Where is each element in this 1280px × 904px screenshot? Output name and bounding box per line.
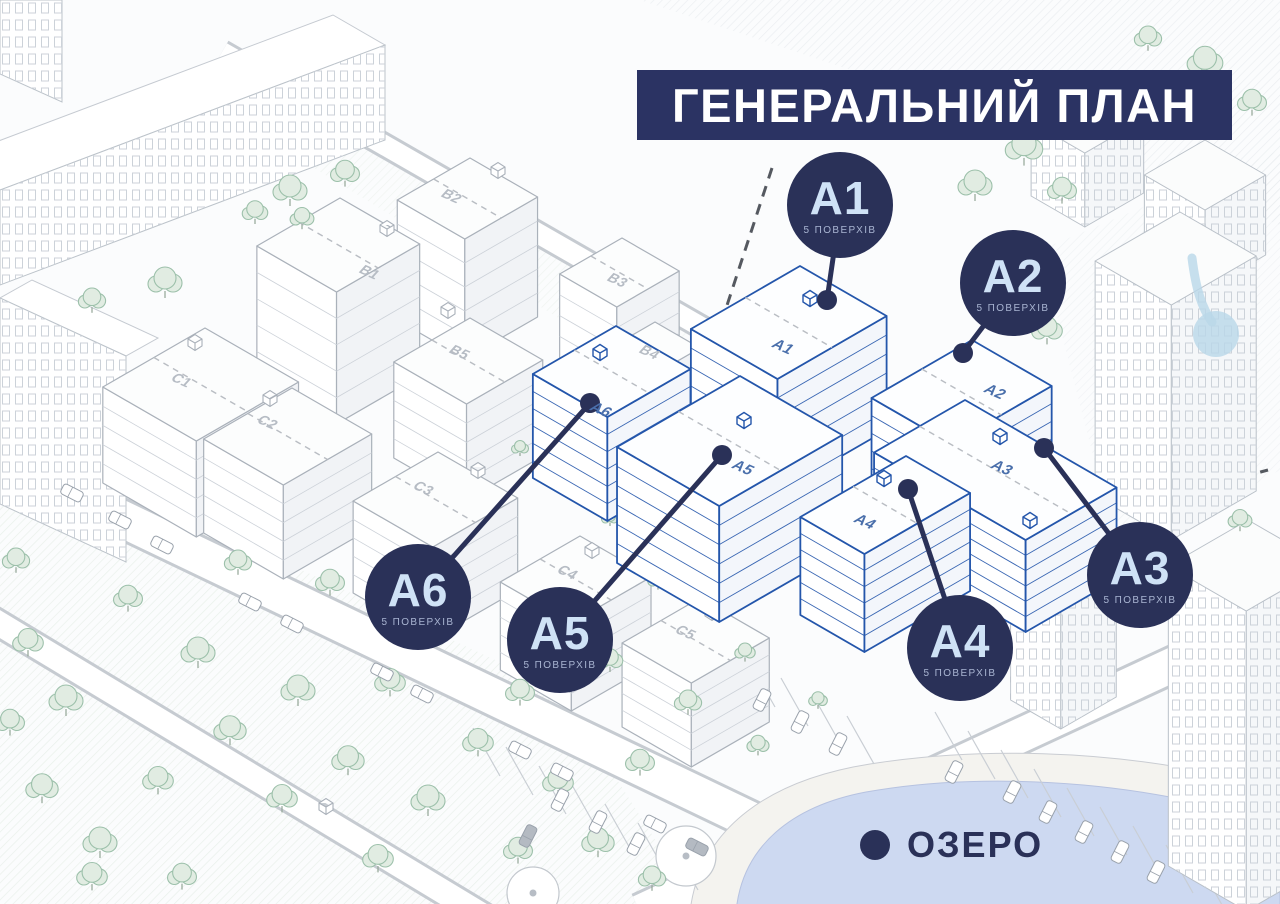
badge-a2-floors: 5 ПОВЕРХІВ <box>977 303 1050 314</box>
badge-a6-floors: 5 ПОВЕРХІВ <box>382 617 455 628</box>
building-badge-a5[interactable]: A5 5 ПОВЕРХІВ <box>507 587 613 693</box>
masterplan-poster: ГЕНЕРАЛЬНИЙ ПЛАН A1 5 ПОВЕРХІВ A2 5 ПОВЕ… <box>0 0 1280 904</box>
badge-a1-floors: 5 ПОВЕРХІВ <box>804 225 877 236</box>
badge-a5-floors: 5 ПОВЕРХІВ <box>524 660 597 671</box>
badge-a3-floors: 5 ПОВЕРХІВ <box>1104 595 1177 606</box>
page-title: ГЕНЕРАЛЬНИЙ ПЛАН <box>637 70 1232 140</box>
badge-a3-label: A3 <box>1110 545 1171 591</box>
lake-label-text: ОЗЕРО <box>907 824 1043 866</box>
building-badge-a2[interactable]: A2 5 ПОВЕРХІВ <box>960 230 1066 336</box>
badge-a6-label: A6 <box>388 567 449 613</box>
building-badge-a1[interactable]: A1 5 ПОВЕРХІВ <box>787 152 893 258</box>
badge-a5-label: A5 <box>530 610 591 656</box>
badge-a2-label: A2 <box>983 253 1044 299</box>
building-badge-a6[interactable]: A6 5 ПОВЕРХІВ <box>365 544 471 650</box>
lake-label: ОЗЕРО <box>860 824 1043 866</box>
lake-marker-dot <box>860 830 890 860</box>
building-badge-a4[interactable]: A4 5 ПОВЕРХІВ <box>907 595 1013 701</box>
badge-a1-label: A1 <box>810 175 871 221</box>
badge-a4-label: A4 <box>930 618 991 664</box>
building-badge-a3[interactable]: A3 5 ПОВЕРХІВ <box>1087 522 1193 628</box>
badge-a4-floors: 5 ПОВЕРХІВ <box>924 668 997 679</box>
